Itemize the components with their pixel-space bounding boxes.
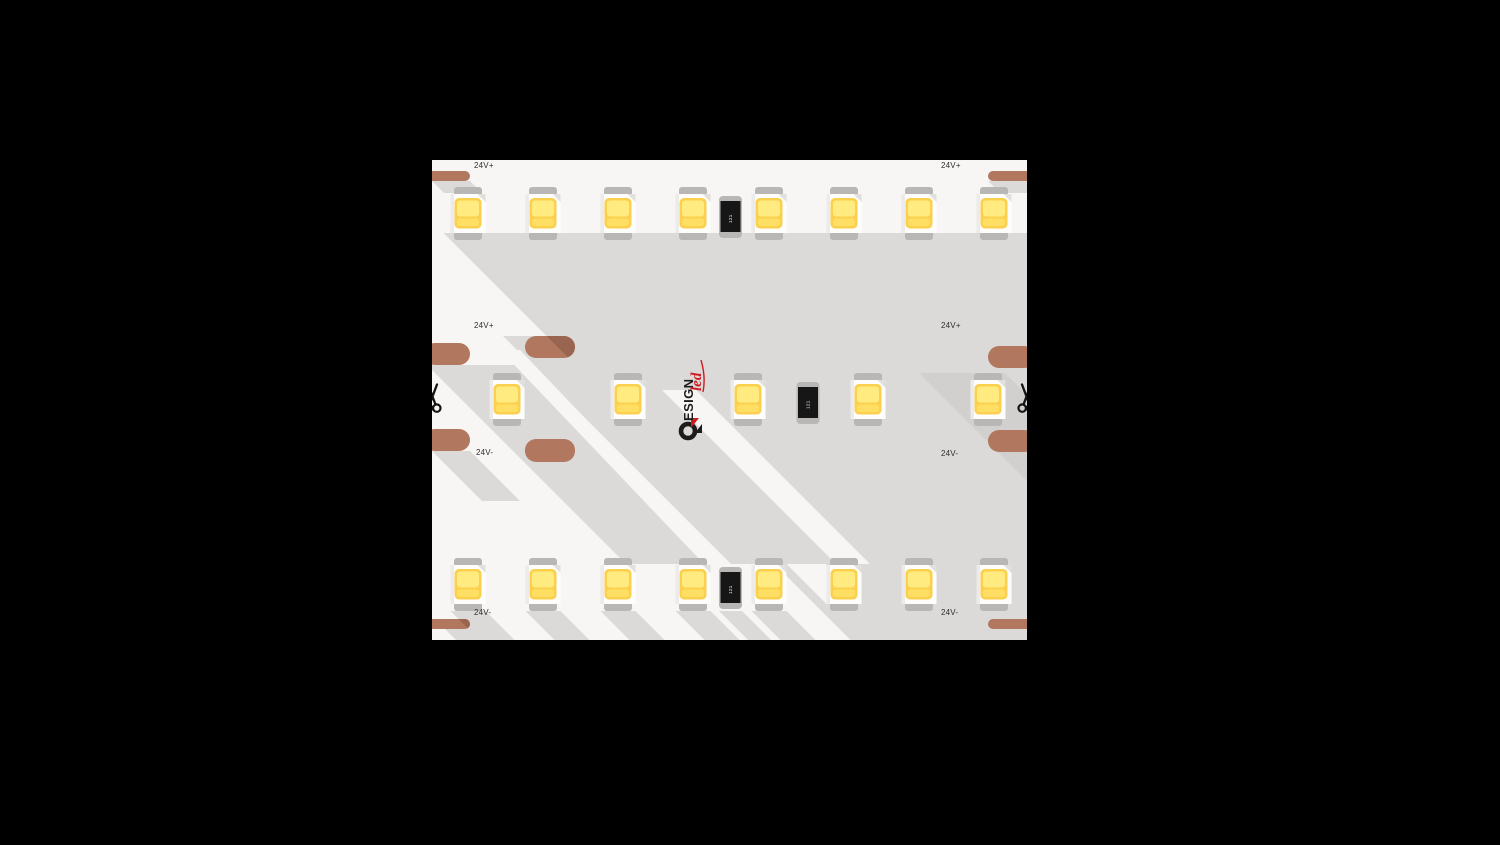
led-gap-highlight (787, 564, 827, 604)
voltage-label-mid-left-neg: 24V- (476, 448, 493, 457)
led-chip (902, 187, 937, 240)
led-gap-highlight (742, 193, 752, 203)
led-chip (731, 373, 766, 426)
led-chip (526, 558, 561, 611)
pad-shadow-mid-left (432, 451, 520, 501)
led-chip (827, 187, 862, 240)
led-gap-highlight (711, 193, 720, 202)
led-gap-highlight (937, 193, 977, 233)
scissors-icon (432, 385, 441, 412)
voltage-label-bottom-right: 24V- (941, 608, 958, 617)
led-gap-highlight (636, 564, 676, 604)
led-chip (851, 373, 886, 426)
led-gap-highlight (1012, 193, 1028, 209)
led-chip (971, 373, 1006, 426)
led-strip: 121121121 ESIGN led 24V+ 24V+ 24V+ 24V+ … (432, 160, 1027, 640)
led-chip (977, 187, 1012, 240)
led-chip (977, 558, 1012, 611)
led-gap-highlight (486, 564, 526, 604)
voltage-label-mid-left-pos: 24V+ (474, 321, 494, 330)
voltage-label-top-right: 24V+ (941, 161, 961, 170)
led-chip (902, 558, 937, 611)
brand-script: led (689, 372, 705, 391)
bottom-led-shadow (526, 611, 590, 640)
resistor: 121 (719, 196, 742, 238)
solder-pad-mid-left-negative (432, 429, 470, 451)
led-chip (752, 187, 787, 240)
led-chip (601, 187, 636, 240)
solder-pad-mid-left-positive (432, 343, 470, 365)
voltage-label-mid-right-neg: 24V- (941, 449, 958, 458)
led-gap-highlight (742, 564, 752, 574)
solder-pad-bottom-right (988, 619, 1027, 629)
voltage-label-mid-right-pos: 24V+ (941, 321, 961, 330)
voltage-label-top-left: 24V+ (474, 161, 494, 170)
canvas-background: { "background_color": "#000000", "strip"… (0, 0, 1500, 845)
resistor-code: 121 (728, 214, 733, 223)
resistor-code: 121 (728, 585, 733, 594)
led-chip (676, 558, 711, 611)
voltage-label-bottom-left: 24V- (474, 608, 491, 617)
resistor: 121 (719, 567, 742, 609)
led-chip (490, 373, 525, 426)
led-chip (451, 558, 486, 611)
led-chip (451, 187, 486, 240)
led-gap-highlight (787, 193, 827, 233)
led-gap-highlight (862, 193, 902, 233)
solder-pad-mid-right-negative (988, 430, 1027, 452)
led-gap-highlight (561, 193, 601, 233)
led-chip (676, 187, 711, 240)
led-gap-highlight (561, 564, 601, 604)
solder-pad-top-right (988, 171, 1027, 181)
led-chip (611, 373, 646, 426)
led-strip-artwork: 121121121 ESIGN led 24V+ 24V+ 24V+ 24V+ … (432, 160, 1027, 640)
solder-pad-inner-negative (525, 439, 575, 462)
bottom-led-shadow (601, 611, 665, 640)
solder-pad-top-left (432, 171, 470, 181)
led-gap-highlight (486, 193, 526, 233)
led-gap-highlight (636, 193, 676, 233)
led-chip (752, 558, 787, 611)
resistor: 121 (797, 382, 820, 424)
led-chip (601, 558, 636, 611)
led-chip (526, 187, 561, 240)
solder-pad-mid-right-positive (988, 346, 1027, 368)
led-chip (827, 558, 862, 611)
resistor-code: 121 (806, 400, 811, 409)
led-gap-highlight (711, 564, 720, 573)
